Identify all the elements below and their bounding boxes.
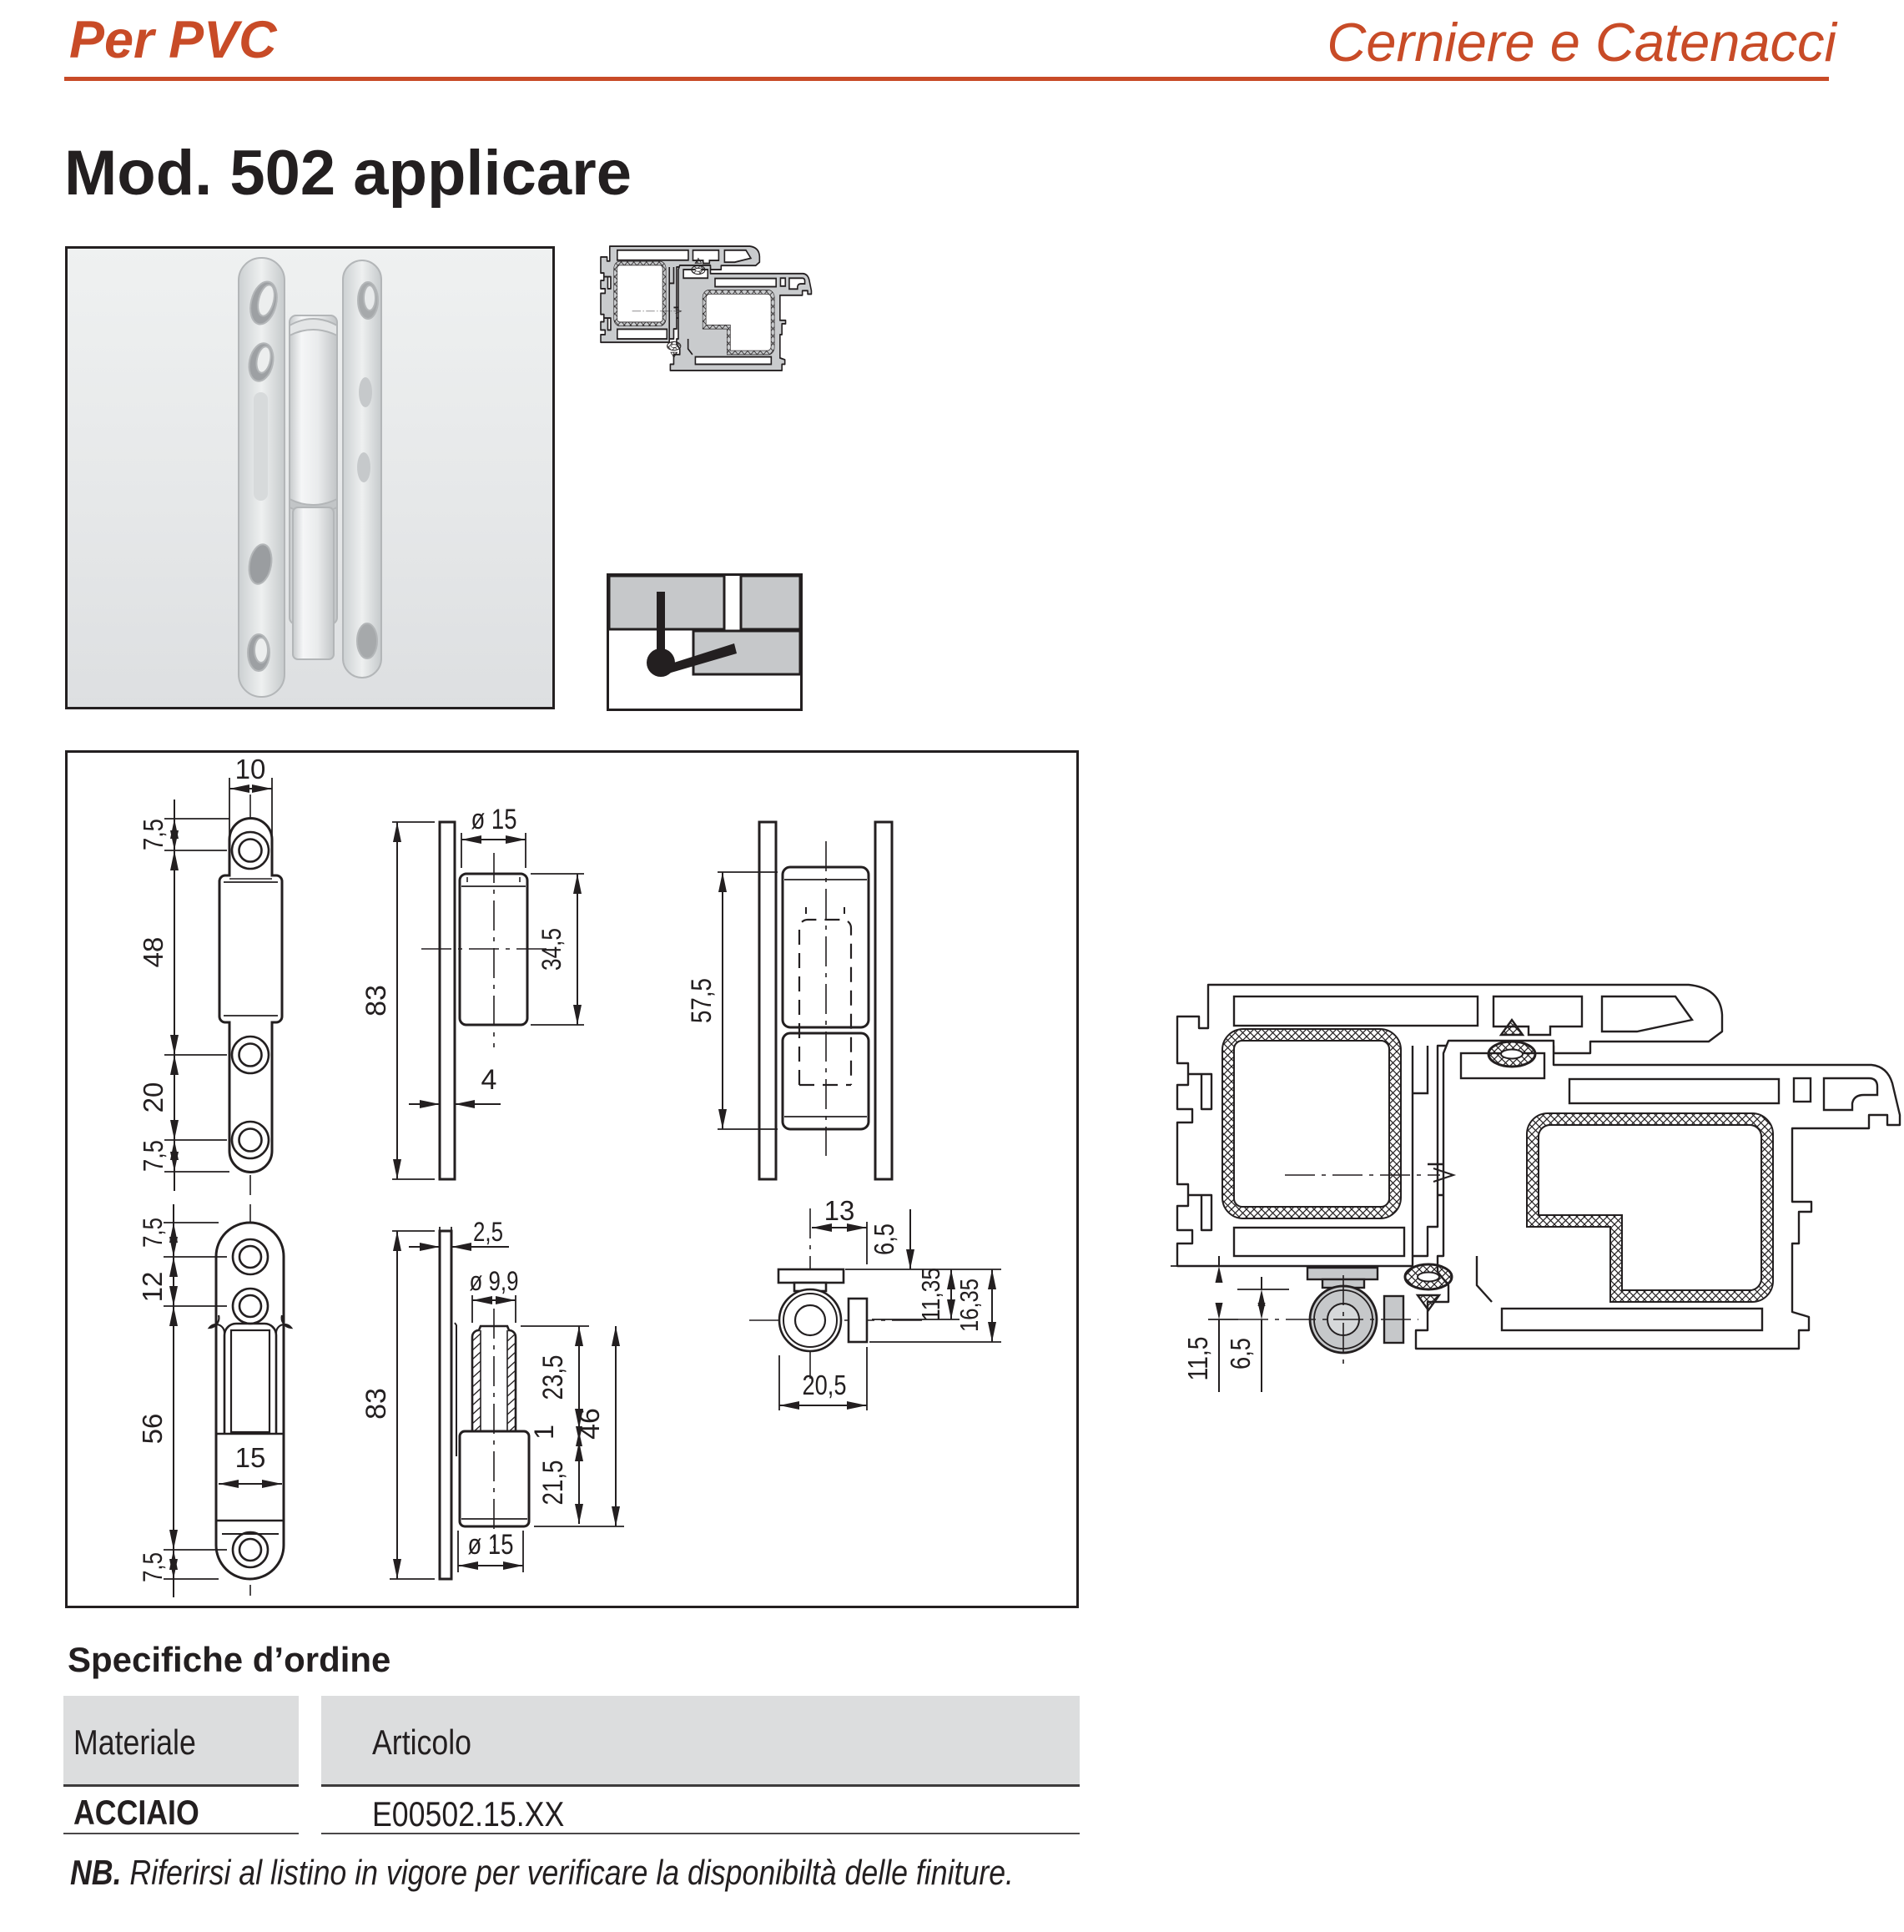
svg-text:2,5: 2,5 [473,1217,503,1247]
svg-text:56: 56 [137,1414,168,1445]
svg-text:10: 10 [235,754,266,784]
svg-text:7,5: 7,5 [138,1218,168,1248]
svg-text:23,5: 23,5 [537,1355,569,1400]
svg-text:11,35: 11,35 [916,1268,945,1321]
svg-text:ø 15: ø 15 [471,804,517,835]
svg-text:48: 48 [138,937,169,968]
svg-text:46: 46 [574,1408,606,1440]
svg-text:83: 83 [360,1388,392,1420]
svg-text:21,5: 21,5 [537,1460,569,1506]
svg-text:16,35: 16,35 [955,1279,984,1332]
svg-text:20,5: 20,5 [803,1370,847,1400]
svg-text:15: 15 [235,1442,266,1473]
svg-text:7,5: 7,5 [138,1140,169,1172]
svg-text:57,5: 57,5 [686,978,718,1023]
svg-text:12: 12 [137,1272,168,1303]
svg-text:6,5: 6,5 [869,1223,899,1255]
svg-text:20: 20 [138,1082,169,1113]
svg-text:11,5: 11,5 [1182,1337,1213,1381]
svg-text:ø 9,9: ø 9,9 [470,1266,519,1296]
svg-text:7,5: 7,5 [138,1552,168,1582]
svg-text:13: 13 [824,1195,855,1226]
svg-text:1: 1 [529,1425,559,1440]
svg-text:34,5: 34,5 [536,928,567,971]
svg-text:4: 4 [481,1064,497,1096]
svg-text:ø 15: ø 15 [468,1529,514,1561]
svg-text:6,5: 6,5 [1225,1338,1256,1370]
svg-text:83: 83 [360,985,392,1016]
svg-text:7,5: 7,5 [138,819,169,850]
